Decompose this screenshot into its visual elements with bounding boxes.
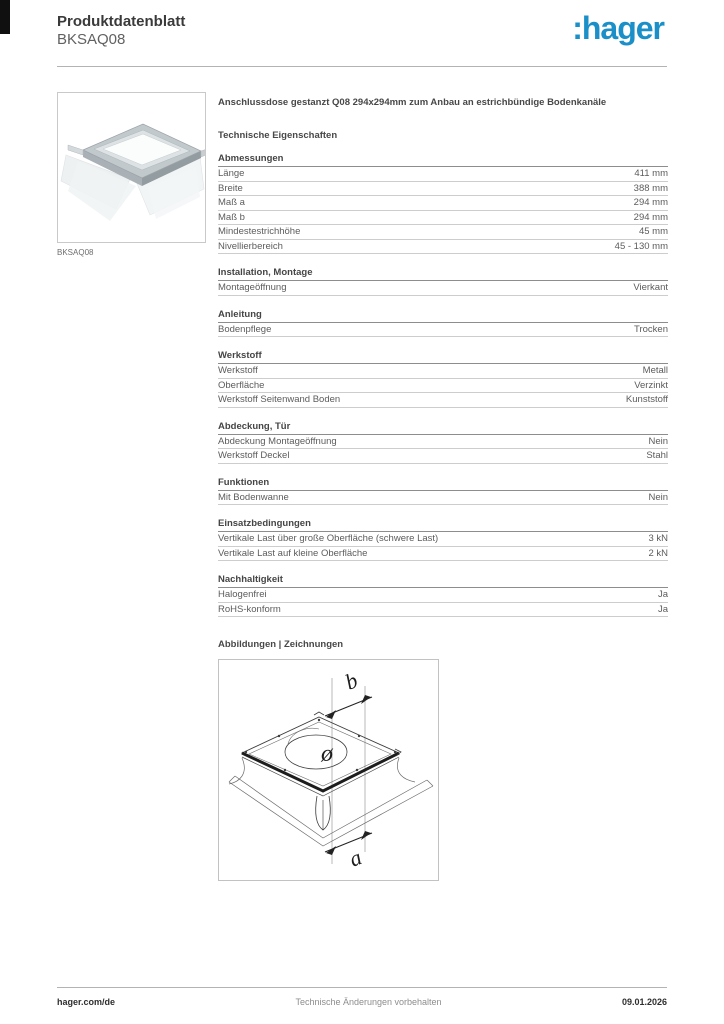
dimension-label-a: a xyxy=(346,844,366,871)
spec-row-label: RoHS-konform xyxy=(218,605,281,616)
spec-row-label: Vertikale Last über große Oberfläche (sc… xyxy=(218,534,438,545)
footer-website: hager.com/de xyxy=(57,997,115,1008)
spec-section: Funktionen Mit Bodenwanne Nein xyxy=(218,477,668,506)
spec-row: Werkstoff Deckel Stahl xyxy=(218,449,668,464)
spec-row: Länge 411 mm xyxy=(218,167,668,182)
header: Produktdatenblatt BKSAQ08 xyxy=(57,13,185,49)
spec-row-label: Mindestestrichhöhe xyxy=(218,227,300,238)
footer-divider xyxy=(57,987,667,988)
spec-row: Werkstoff Metall xyxy=(218,364,668,379)
spec-row: Bodenpflege Trocken xyxy=(218,323,668,338)
spec-section-rows: Werkstoff Metall Oberfläche Verzinkt Wer… xyxy=(218,364,668,408)
spec-row-value: Metall xyxy=(643,366,668,377)
spec-section: Installation, Montage Montageöffnung Vie… xyxy=(218,267,668,296)
dimension-drawing: b ø xyxy=(219,660,438,880)
spec-row-value: Verzinkt xyxy=(634,381,668,392)
spec-row: Mit Bodenwanne Nein xyxy=(218,491,668,506)
spec-row-value: 411 mm xyxy=(634,169,668,180)
spec-row: Vertikale Last auf kleine Oberfläche 2 k… xyxy=(218,547,668,562)
spec-row: Mindestestrichhöhe 45 mm xyxy=(218,225,668,240)
spec-row: Vertikale Last über große Oberfläche (sc… xyxy=(218,532,668,547)
product-description: Anschlussdose gestanzt Q08 294x294mm zum… xyxy=(218,92,668,108)
spec-section-title: Installation, Montage xyxy=(218,267,668,281)
spec-row-value: 294 mm xyxy=(634,198,668,209)
spec-row: Breite 388 mm xyxy=(218,182,668,197)
product-image-caption: BKSAQ08 xyxy=(57,248,206,257)
spec-row: RoHS-konform Ja xyxy=(218,603,668,618)
spec-row-value: Vierkant xyxy=(633,283,668,294)
product-image xyxy=(57,92,206,243)
page-title: Produktdatenblatt xyxy=(57,13,185,31)
product-code: BKSAQ08 xyxy=(57,31,185,49)
spec-row-label: Werkstoff xyxy=(218,366,258,377)
spec-row-label: Maß a xyxy=(218,198,245,209)
spec-section-title: Werkstoff xyxy=(218,350,668,364)
hager-logo: :hager xyxy=(572,10,664,46)
spec-row-value: Ja xyxy=(658,590,668,601)
spec-row-value: Kunststoff xyxy=(626,395,668,406)
spec-section-rows: Mit Bodenwanne Nein xyxy=(218,491,668,506)
spec-section-title: Abmessungen xyxy=(218,153,668,167)
spec-row: Maß b 294 mm xyxy=(218,211,668,226)
spec-section: Einsatzbedingungen Vertikale Last über g… xyxy=(218,518,668,561)
spec-row-value: Nein xyxy=(648,493,668,504)
spec-sections: Abmessungen Länge 411 mm Breite 388 mm M… xyxy=(218,153,668,617)
spec-section-rows: Bodenpflege Trocken xyxy=(218,323,668,338)
tech-properties-heading: Technische Eigenschaften xyxy=(218,130,668,141)
spec-row-label: Vertikale Last auf kleine Oberfläche xyxy=(218,549,367,560)
spec-row: Werkstoff Seitenwand Boden Kunststoff xyxy=(218,393,668,408)
spec-section: Anleitung Bodenpflege Trocken xyxy=(218,309,668,338)
drawings-heading: Abbildungen | Zeichnungen xyxy=(218,639,668,650)
spec-section-rows: Montageöffnung Vierkant xyxy=(218,281,668,296)
spec-section-title: Abdeckung, Tür xyxy=(218,421,668,435)
spec-row: Halogenfrei Ja xyxy=(218,588,668,603)
spec-section-rows: Länge 411 mm Breite 388 mm Maß a 294 mm … xyxy=(218,167,668,254)
spec-section: Abmessungen Länge 411 mm Breite 388 mm M… xyxy=(218,153,668,254)
spec-row-value: Stahl xyxy=(646,451,668,462)
spec-row-label: Nivellierbereich xyxy=(218,242,283,253)
technical-drawing: b ø xyxy=(218,659,439,881)
spec-row: Nivellierbereich 45 - 130 mm xyxy=(218,240,668,255)
spec-section-rows: Abdeckung Montageöffnung Nein Werkstoff … xyxy=(218,435,668,464)
spec-row: Montageöffnung Vierkant xyxy=(218,281,668,296)
spec-section-title: Nachhaltigkeit xyxy=(218,574,668,588)
spec-row-value: Ja xyxy=(658,605,668,616)
spec-section: Nachhaltigkeit Halogenfrei Ja RoHS-konfo… xyxy=(218,574,668,617)
spec-section: Werkstoff Werkstoff Metall Oberfläche Ve… xyxy=(218,350,668,408)
product-figure: BKSAQ08 xyxy=(57,92,206,257)
spec-row-label: Oberfläche xyxy=(218,381,264,392)
spec-row-value: 294 mm xyxy=(634,213,668,224)
spec-row-label: Werkstoff Deckel xyxy=(218,451,289,462)
footer: hager.com/de Technische Änderungen vorbe… xyxy=(57,997,667,1008)
spec-row-label: Mit Bodenwanne xyxy=(218,493,289,504)
spec-section-rows: Halogenfrei Ja RoHS-konform Ja xyxy=(218,588,668,617)
spec-row-value: 45 - 130 mm xyxy=(615,242,668,253)
datasheet-page: Produktdatenblatt BKSAQ08 :hager xyxy=(0,0,724,1024)
spec-section-rows: Vertikale Last über große Oberfläche (sc… xyxy=(218,532,668,561)
page-corner-mark xyxy=(0,0,10,34)
spec-row-label: Länge xyxy=(218,169,244,180)
spec-row-label: Breite xyxy=(218,184,243,195)
spec-row-value: 388 mm xyxy=(634,184,668,195)
spec-row-label: Halogenfrei xyxy=(218,590,267,601)
spec-row-label: Montageöffnung xyxy=(218,283,287,294)
spec-row: Oberfläche Verzinkt xyxy=(218,379,668,394)
spec-row: Maß a 294 mm xyxy=(218,196,668,211)
spec-section-title: Einsatzbedingungen xyxy=(218,518,668,532)
footer-date: 09.01.2026 xyxy=(622,997,667,1008)
spec-row-label: Werkstoff Seitenwand Boden xyxy=(218,395,340,406)
spec-row-value: 2 kN xyxy=(648,549,668,560)
spec-row-label: Bodenpflege xyxy=(218,325,271,336)
spec-row: Abdeckung Montageöffnung Nein xyxy=(218,435,668,450)
spec-row-value: Nein xyxy=(648,437,668,448)
header-divider xyxy=(57,66,667,67)
spec-section-title: Funktionen xyxy=(218,477,668,491)
main-content: Anschlussdose gestanzt Q08 294x294mm zum… xyxy=(218,92,668,881)
spec-row-label: Maß b xyxy=(218,213,245,224)
product-photo-rendering xyxy=(58,93,206,243)
dimension-label-b: b xyxy=(342,667,362,694)
spec-row-value: 45 mm xyxy=(639,227,668,238)
spec-row-value: Trocken xyxy=(634,325,668,336)
spec-section: Abdeckung, Tür Abdeckung Montageöffnung … xyxy=(218,421,668,464)
spec-row-value: 3 kN xyxy=(648,534,668,545)
footer-disclaimer: Technische Änderungen vorbehalten xyxy=(295,997,441,1008)
spec-section-title: Anleitung xyxy=(218,309,668,323)
dimension-label-diameter: ø xyxy=(320,741,334,767)
spec-row-label: Abdeckung Montageöffnung xyxy=(218,437,337,448)
